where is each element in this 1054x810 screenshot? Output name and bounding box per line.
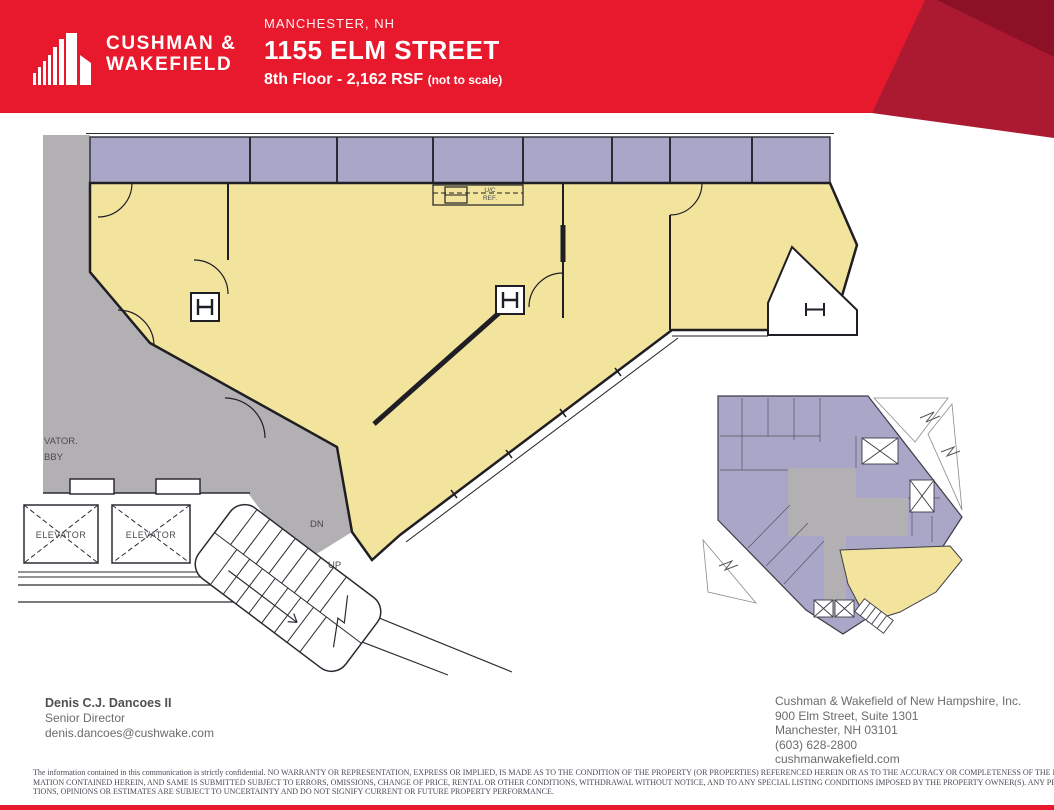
company-address-2: Manchester, NH 03101	[775, 723, 1021, 738]
lobby-label-line1: VATOR.	[44, 436, 78, 447]
elevator-label-2: ELEVATOR	[126, 530, 177, 540]
kitchen-label-line2: REF.	[483, 195, 497, 202]
company-address-1: 900 Elm Street, Suite 1301	[775, 709, 1021, 724]
disclaimer-line-2: MATION CONTAINED HEREIN, AND SAME IS SUB…	[33, 778, 1033, 788]
floor-plan-canvas: VATOR. BBY ELEVATOR ELEVATOR DN UP U/C R…	[0, 0, 1054, 700]
company-website: cushmanwakefield.com	[775, 752, 1021, 767]
disclaimer-line-3: TIONS, OPINIONS OR ESTIMATES ARE SUBJECT…	[33, 787, 1033, 797]
company-block: Cushman & Wakefield of New Hampshire, In…	[775, 694, 1021, 767]
contact-title: Senior Director	[45, 711, 214, 726]
other-tenant-band	[86, 134, 834, 184]
company-phone: (603) 628-2800	[775, 738, 1021, 753]
disclaimer-line-1: The information contained in this commun…	[33, 768, 1033, 778]
stair-up-label: UP	[328, 560, 341, 571]
footer-accent-bar	[0, 805, 1054, 810]
company-name: Cushman & Wakefield of New Hampshire, In…	[775, 694, 1021, 709]
contact-name: Denis C.J. Dancoes II	[45, 696, 214, 711]
elevator-label-1: ELEVATOR	[36, 530, 87, 540]
overview-key-plan	[703, 396, 962, 634]
stair-down-label: DN	[310, 519, 324, 530]
kitchen-label-line1: U/C	[484, 187, 496, 194]
contact-email: denis.dancoes@cushwake.com	[45, 726, 214, 741]
legal-disclaimer: The information contained in this commun…	[33, 768, 1033, 797]
lobby-label-line2: BBY	[44, 452, 64, 463]
contact-block: Denis C.J. Dancoes II Senior Director de…	[45, 696, 214, 741]
